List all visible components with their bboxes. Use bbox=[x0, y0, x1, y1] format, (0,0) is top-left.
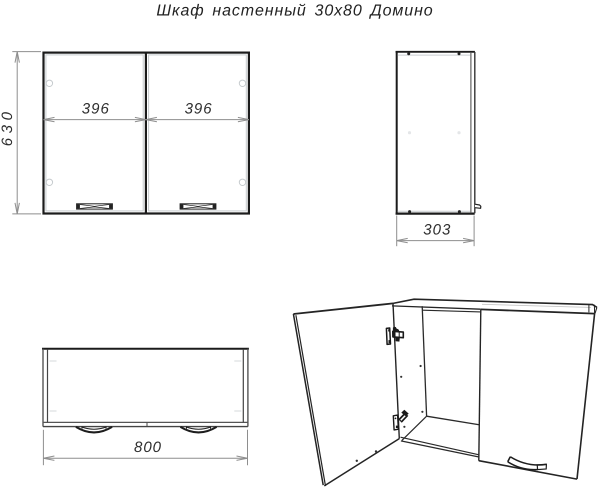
svg-text:396: 396 bbox=[185, 100, 213, 117]
svg-text:630: 630 bbox=[0, 107, 16, 146]
svg-text:303: 303 bbox=[423, 221, 451, 238]
svg-text:Шкаф настенный 30х80 Домино: Шкаф настенный 30х80 Домино bbox=[156, 3, 433, 20]
svg-text:396: 396 bbox=[82, 100, 110, 117]
svg-text:800: 800 bbox=[134, 439, 162, 456]
